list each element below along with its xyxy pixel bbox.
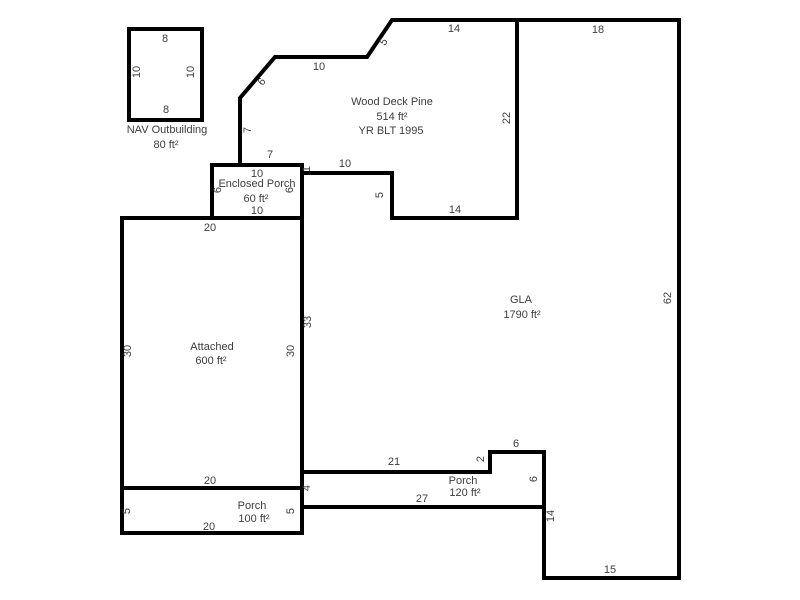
dimension-label: 20 bbox=[204, 222, 216, 234]
room-area: 60 ft² bbox=[243, 193, 268, 205]
dimension-label: 2 bbox=[475, 456, 487, 462]
dimension-label: 6 bbox=[212, 187, 224, 193]
dimension-label: 1 bbox=[301, 166, 313, 172]
room-title: Porch bbox=[238, 500, 267, 512]
dimension-label: 10 bbox=[251, 205, 263, 217]
dimension-label: 8 bbox=[163, 104, 169, 116]
dimension-label: 30 bbox=[285, 345, 297, 357]
room-area: 80 ft² bbox=[153, 139, 178, 151]
dimension-label: 6 bbox=[513, 438, 519, 450]
room-title: Porch bbox=[449, 475, 478, 487]
dimension-label: 6 bbox=[528, 476, 540, 482]
dimension-label: 7 bbox=[242, 127, 254, 133]
dimension-label: 10 bbox=[185, 66, 197, 78]
dimension-label: 62 bbox=[662, 292, 674, 304]
dimension-label: 15 bbox=[604, 564, 616, 576]
dimension-label: 27 bbox=[416, 493, 428, 505]
dimension-label: 5 bbox=[377, 36, 390, 48]
dimension-label: 10 bbox=[339, 158, 351, 170]
room-area: 1790 ft² bbox=[503, 309, 541, 321]
room-title: Wood Deck Pine bbox=[351, 96, 433, 108]
dimension-label: 33 bbox=[302, 316, 314, 328]
floor-plan-sketch: 810108NAV Outbuilding80 ft²6105142277Woo… bbox=[0, 0, 800, 600]
dimension-label: 6 bbox=[255, 76, 268, 88]
dimension-label: 6 bbox=[284, 187, 296, 193]
dimension-label: 8 bbox=[162, 33, 168, 45]
dimension-label: 22 bbox=[501, 112, 513, 124]
dimension-label: 5 bbox=[121, 508, 133, 514]
dimension-label: 10 bbox=[131, 66, 143, 78]
year-built-label: YR BLT 1995 bbox=[358, 125, 423, 137]
room-area: 100 ft² bbox=[238, 513, 270, 525]
attached-outline bbox=[122, 218, 302, 488]
room-area: 514 ft² bbox=[376, 111, 408, 123]
dimension-label: 14 bbox=[449, 204, 461, 216]
dimension-label: 21 bbox=[388, 456, 400, 468]
dimension-label: 20 bbox=[204, 475, 216, 487]
dimension-label: 5 bbox=[285, 508, 297, 514]
dimension-label: 7 bbox=[267, 149, 273, 161]
dimension-label: 5 bbox=[374, 192, 386, 198]
sketch-canvas: 810108NAV Outbuilding80 ft²6105142277Woo… bbox=[0, 0, 800, 600]
room-title: Attached bbox=[190, 341, 233, 353]
room-area: 120 ft² bbox=[449, 487, 481, 499]
room-title: NAV Outbuilding bbox=[127, 124, 208, 136]
dimension-label: 14 bbox=[545, 510, 557, 522]
room-area: 600 ft² bbox=[195, 355, 227, 367]
dimension-label: 20 bbox=[203, 521, 215, 533]
room-title: GLA bbox=[510, 294, 533, 306]
dimension-label: 10 bbox=[313, 61, 325, 73]
dimension-label: 18 bbox=[592, 24, 604, 36]
dimension-label: 4 bbox=[301, 485, 313, 491]
dimension-label: 30 bbox=[122, 345, 134, 357]
dimension-label: 14 bbox=[448, 23, 460, 35]
